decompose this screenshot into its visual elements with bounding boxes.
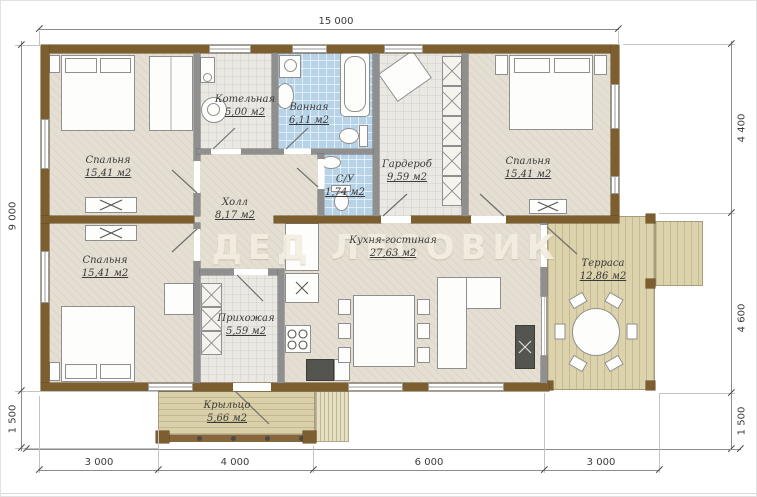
dim-label-bottom: 6 000 xyxy=(415,457,444,468)
room-area: 15,41 м2 xyxy=(85,167,131,180)
extension-line xyxy=(659,213,735,214)
room-label-kitchen-living: Кухня-гостиная 27,63 м2 xyxy=(349,234,437,260)
room-name: С/У xyxy=(336,174,354,185)
extension-line xyxy=(544,393,545,473)
door-leaf xyxy=(297,168,318,187)
room-name: Ванная xyxy=(289,102,328,113)
room-name: Прихожая xyxy=(217,313,274,324)
dimension-line-overall xyxy=(26,449,741,450)
room-area: 5,59 м2 xyxy=(217,325,274,338)
room-area: 12,86 м2 xyxy=(580,270,626,283)
room-area: 5,66 м2 xyxy=(203,412,250,425)
dimension-line-right xyxy=(731,41,732,449)
door-leaf xyxy=(286,128,308,149)
room-area: 6,11 м2 xyxy=(289,114,329,127)
extension-line xyxy=(659,393,660,473)
room-label-hall: Холл 8,17 м2 xyxy=(215,196,255,222)
room-name: Спальня xyxy=(505,156,550,167)
room-label-porch: Крыльцо 5,66 м2 xyxy=(203,399,250,425)
door-leaf xyxy=(480,194,504,216)
room-name: Спальня xyxy=(82,255,127,266)
dresser-icon xyxy=(100,200,122,210)
extension-line xyxy=(618,31,619,45)
extension-line xyxy=(39,396,40,473)
room-area: 8,17 м2 xyxy=(215,209,255,222)
room-name: Холл xyxy=(222,197,248,208)
floor-plan: ДЕД ЛЕСОВИК Спальня 15,41 м2 Котельная 5… xyxy=(0,0,757,497)
dim-label-right: 1 500 xyxy=(737,407,748,436)
room-name: Терраса xyxy=(582,258,625,269)
dim-label-right: 4 600 xyxy=(737,304,748,333)
stove-burner-icon xyxy=(299,341,307,349)
room-name: Котельная xyxy=(215,94,275,105)
room-area: 15,41 м2 xyxy=(82,267,128,280)
room-name: Кухня-гостиная xyxy=(349,235,437,246)
door-leaf xyxy=(237,275,263,301)
extension-line xyxy=(659,393,735,394)
door-leaf xyxy=(213,128,235,149)
dim-label-right: 4 400 xyxy=(737,114,748,143)
room-label-bathroom: Ванная 6,11 м2 xyxy=(289,101,329,127)
room-area: 27,63 м2 xyxy=(349,247,437,260)
dim-label-left: 1 500 xyxy=(8,405,19,434)
dresser-icon xyxy=(538,202,558,211)
dim-label-bottom: 3 000 xyxy=(85,457,114,468)
room-label-wardrobe: Гардероб 9,59 м2 xyxy=(382,158,432,184)
room-label-terrace: Терраса 12,86 м2 xyxy=(580,257,626,283)
door-leaf xyxy=(383,194,407,216)
room-area: 15,41 м2 xyxy=(505,168,551,181)
dim-label-bottom: 4 000 xyxy=(221,457,250,468)
extension-line xyxy=(15,391,158,392)
dim-label-left: 9 000 xyxy=(8,202,19,231)
dimension-line-top xyxy=(39,29,619,30)
room-label-bedroom-tl: Спальня 15,41 м2 xyxy=(85,154,131,180)
stove-burner-icon xyxy=(288,341,296,349)
fireplace-icon xyxy=(519,341,531,353)
stove-burner-icon xyxy=(288,330,296,338)
extension-line xyxy=(39,31,40,45)
dim-label-bottom: 3 000 xyxy=(587,457,616,468)
room-name: Спальня xyxy=(85,155,130,166)
room-area: 5,00 м2 xyxy=(215,106,275,119)
room-label-boiler: Котельная 5,00 м2 xyxy=(215,93,275,119)
room-area: 1,74 м2 xyxy=(325,186,365,199)
dim-label-top: 15 000 xyxy=(319,16,354,27)
room-label-wc: С/У 1,74 м2 xyxy=(325,173,365,199)
door-leaf xyxy=(172,229,197,252)
room-name: Гардероб xyxy=(382,159,432,170)
room-name: Крыльцо xyxy=(203,400,250,411)
dimension-line-bottom xyxy=(39,470,659,471)
room-label-entry: Прихожая 5,59 м2 xyxy=(217,312,274,338)
door-leaf xyxy=(172,170,197,193)
room-label-bedroom-tr: Спальня 15,41 м2 xyxy=(505,155,551,181)
room-area: 9,59 м2 xyxy=(382,171,432,184)
room-label-bedroom-bl: Спальня 15,41 м2 xyxy=(82,254,128,280)
stove-burner-icon xyxy=(299,330,307,338)
door-leaf xyxy=(547,227,577,254)
dresser-icon xyxy=(100,228,122,238)
counter-sink-icon xyxy=(296,282,308,294)
extension-line xyxy=(623,44,735,45)
